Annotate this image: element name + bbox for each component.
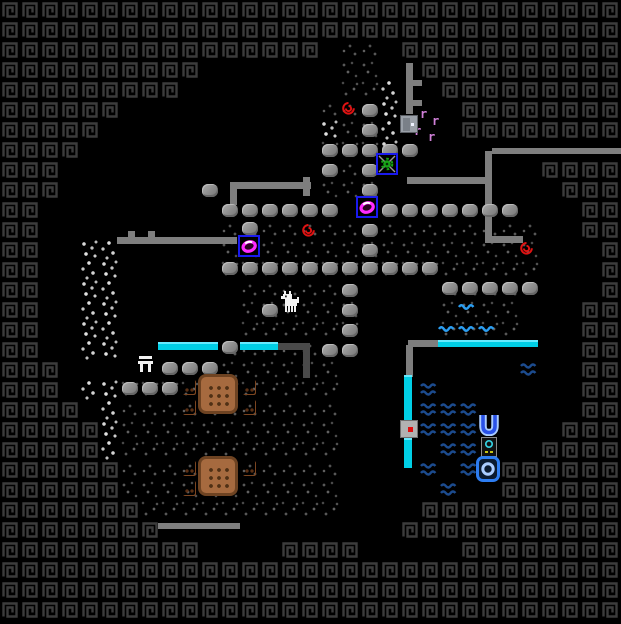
border-wall-tile (400, 580, 420, 600)
rough-floor-tile (300, 240, 320, 260)
border-wall-tile (460, 540, 480, 560)
rough-floor-tile (200, 500, 220, 520)
stone-boulder[interactable] (342, 304, 358, 317)
vermin-glyph[interactable]: r (420, 108, 427, 120)
border-wall-tile (460, 520, 480, 540)
rough-floor-tile (300, 280, 320, 300)
border-wall-tile (300, 20, 320, 40)
stone-boulder[interactable] (182, 362, 198, 375)
border-wall-tile (0, 300, 20, 320)
stone-boulder[interactable] (242, 222, 258, 235)
border-wall-tile (600, 420, 620, 440)
border-wall-tile (400, 0, 420, 20)
stone-boulder[interactable] (282, 204, 298, 217)
stone-boulder[interactable] (342, 262, 358, 275)
rough-floor-tile (320, 480, 340, 500)
border-wall-tile (20, 260, 40, 280)
stone-boulder[interactable] (262, 262, 278, 275)
stone-boulder[interactable] (322, 204, 338, 217)
border-wall-tile (440, 0, 460, 20)
rough-floor-tile (360, 40, 380, 60)
border-wall-tile (600, 120, 620, 140)
rough-floor-tile (260, 360, 280, 380)
border-wall-tile (580, 420, 600, 440)
border-wall-tile (560, 40, 580, 60)
rough-floor-tile (180, 440, 200, 460)
border-wall-tile (600, 280, 620, 300)
ring-building[interactable] (238, 235, 260, 257)
border-wall-tile (280, 0, 300, 20)
border-wall-tile (180, 40, 200, 60)
border-wall-tile (560, 580, 580, 600)
gear-assembly-building[interactable] (376, 153, 398, 175)
border-wall-tile (520, 560, 540, 580)
border-wall-tile (420, 20, 440, 40)
rough-floor-tile (520, 220, 540, 240)
border-wall-tile (60, 600, 80, 620)
white-floor-tile (100, 420, 120, 440)
border-wall-tile (100, 480, 120, 500)
stone-boulder[interactable] (342, 344, 358, 357)
border-wall-tile (300, 0, 320, 20)
border-wall-tile (600, 220, 620, 240)
border-wall-tile (420, 0, 440, 20)
water-tile (420, 422, 438, 441)
border-wall-tile (440, 60, 460, 80)
border-wall-tile (520, 80, 540, 100)
smoothed-wall (407, 177, 487, 184)
border-wall-tile (80, 600, 100, 620)
rough-floor-tile (280, 400, 300, 420)
border-wall-tile (280, 600, 300, 620)
stone-boulder[interactable] (482, 282, 498, 295)
stone-boulder[interactable] (522, 282, 538, 295)
border-wall-tile (20, 500, 40, 520)
stone-boulder[interactable] (282, 262, 298, 275)
border-wall-tile (280, 40, 300, 60)
white-floor-tile (100, 320, 120, 340)
stone-boulder[interactable] (342, 324, 358, 337)
border-wall-tile (40, 520, 60, 540)
red-coil-item[interactable] (340, 100, 357, 121)
border-wall-tile (320, 0, 340, 20)
stone-boulder[interactable] (162, 362, 178, 375)
stone-table-glyph[interactable] (138, 356, 153, 377)
stone-boulder[interactable] (162, 382, 178, 395)
door[interactable] (400, 115, 418, 133)
rough-floor-tile (340, 40, 360, 60)
rough-floor-tile (280, 320, 300, 340)
border-wall-tile (580, 200, 600, 220)
border-wall-tile (200, 580, 220, 600)
border-wall-tile (40, 120, 60, 140)
border-wall-tile (20, 40, 40, 60)
border-wall-tile (240, 40, 260, 60)
rough-floor-tile (480, 300, 500, 320)
border-wall-tile (260, 560, 280, 580)
border-wall-tile (600, 100, 620, 120)
ring-building[interactable] (356, 196, 378, 218)
border-wall-tile (580, 300, 600, 320)
border-wall-tile (580, 480, 600, 500)
border-wall-tile (20, 560, 40, 580)
border-wall-tile (60, 120, 80, 140)
border-wall-tile (300, 600, 320, 620)
border-wall-tile (560, 560, 580, 580)
stone-boulder[interactable] (422, 262, 438, 275)
rough-floor-tile (260, 500, 280, 520)
border-wall-tile (80, 120, 100, 140)
border-wall-tile (0, 320, 20, 340)
border-wall-tile (480, 0, 500, 20)
border-wall-tile (520, 480, 540, 500)
stone-boulder[interactable] (462, 204, 478, 217)
rough-floor-tile (480, 240, 500, 260)
door-marked[interactable] (400, 420, 418, 438)
border-wall-tile (40, 380, 60, 400)
border-wall-tile (380, 560, 400, 580)
border-wall-tile (160, 600, 180, 620)
border-wall-tile (20, 360, 40, 380)
wooden-stool[interactable] (183, 400, 196, 415)
white-floor-tile (100, 260, 120, 280)
stone-boulder[interactable] (402, 262, 418, 275)
border-wall-tile (40, 80, 60, 100)
border-wall-tile (80, 0, 100, 20)
border-wall-tile (600, 560, 620, 580)
stone-boulder[interactable] (322, 144, 338, 157)
border-wall-tile (560, 60, 580, 80)
wooden-stool[interactable] (183, 380, 196, 395)
border-wall-tile (80, 420, 100, 440)
border-wall-tile (160, 20, 180, 40)
border-wall-tile (320, 560, 340, 580)
stone-boulder[interactable] (362, 244, 378, 257)
border-wall-tile (80, 80, 100, 100)
rough-floor-tile (260, 480, 280, 500)
fortress-map[interactable]: rrrr (0, 0, 621, 610)
rough-floor-tile (320, 400, 340, 420)
border-wall-tile (160, 40, 180, 60)
stone-boulder[interactable] (302, 262, 318, 275)
stone-boulder[interactable] (362, 104, 378, 117)
rough-floor-tile (180, 500, 200, 520)
well-glyph[interactable] (478, 413, 500, 440)
border-wall-tile (600, 600, 620, 620)
stone-boulder[interactable] (222, 341, 238, 354)
border-wall-tile (560, 540, 580, 560)
border-wall-tile (360, 20, 380, 40)
rough-floor-tile (160, 400, 180, 420)
border-wall-tile (540, 440, 560, 460)
border-wall-tile (20, 240, 40, 260)
border-wall-tile (0, 560, 20, 580)
stone-boulder[interactable] (362, 224, 378, 237)
border-wall-tile (560, 180, 580, 200)
border-wall-tile (60, 420, 80, 440)
stone-boulder[interactable] (402, 144, 418, 157)
border-wall-tile (0, 580, 20, 600)
border-wall-tile (560, 20, 580, 40)
rough-floor-tile (440, 240, 460, 260)
rough-floor-tile (500, 300, 520, 320)
border-wall-tile (580, 380, 600, 400)
white-cat-creature[interactable] (281, 291, 301, 318)
border-wall-tile (440, 600, 460, 620)
border-wall-tile (560, 100, 580, 120)
border-wall-tile (480, 20, 500, 40)
border-wall-tile (0, 120, 20, 140)
wooden-stool[interactable] (243, 461, 256, 476)
stone-boulder[interactable] (142, 382, 158, 395)
border-wall-tile (60, 480, 80, 500)
border-wall-tile (460, 40, 480, 60)
border-wall-tile (0, 240, 20, 260)
smoothed-wall (413, 100, 422, 106)
border-wall-tile (40, 400, 60, 420)
border-wall-tile (360, 560, 380, 580)
white-floor-tile (80, 320, 100, 340)
border-wall-tile (100, 460, 120, 480)
shallow-water-tile (458, 318, 475, 337)
border-wall-tile (500, 560, 520, 580)
white-floor-tile (80, 380, 100, 400)
border-wall-tile (500, 80, 520, 100)
stone-boulder[interactable] (362, 262, 378, 275)
rough-floor-tile (160, 480, 180, 500)
border-wall-tile (560, 0, 580, 20)
border-wall-tile (20, 280, 40, 300)
rough-floor-tile (280, 220, 300, 240)
rough-floor-tile (120, 400, 140, 420)
border-wall-tile (0, 220, 20, 240)
water-tile (460, 422, 478, 441)
border-wall-tile (20, 160, 40, 180)
border-wall-tile (500, 580, 520, 600)
border-wall-tile (0, 480, 20, 500)
border-wall-tile (40, 540, 60, 560)
stone-boulder[interactable] (482, 204, 498, 217)
rough-floor-tile (500, 240, 520, 260)
rough-floor-tile (200, 420, 220, 440)
white-floor-tile (100, 380, 120, 400)
wooden-stool[interactable] (243, 380, 256, 395)
rough-floor-tile (120, 460, 140, 480)
rough-floor-tile (240, 360, 260, 380)
rough-floor-tile (340, 80, 360, 100)
border-wall-tile (600, 40, 620, 60)
border-wall-tile (120, 600, 140, 620)
stone-boulder[interactable] (502, 282, 518, 295)
border-wall-tile (300, 580, 320, 600)
wooden-table[interactable] (198, 374, 238, 414)
white-floor-tile (320, 120, 340, 140)
border-wall-tile (80, 540, 100, 560)
border-wall-tile (80, 520, 100, 540)
border-wall-tile (100, 580, 120, 600)
border-wall-tile (20, 440, 40, 460)
stone-boulder[interactable] (402, 204, 418, 217)
stone-boulder[interactable] (502, 204, 518, 217)
border-wall-tile (580, 540, 600, 560)
water-tile (460, 402, 478, 421)
border-wall-tile (380, 20, 400, 40)
border-wall-tile (40, 180, 60, 200)
border-wall-tile (520, 20, 540, 40)
border-wall-tile (280, 580, 300, 600)
border-wall-tile (20, 80, 40, 100)
border-wall-tile (540, 0, 560, 20)
border-wall-tile (480, 500, 500, 520)
stone-boulder[interactable] (202, 184, 218, 197)
border-wall-tile (520, 120, 540, 140)
border-wall-tile (600, 160, 620, 180)
stone-boulder[interactable] (422, 204, 438, 217)
rough-floor-tile (460, 260, 480, 280)
blue-o-building[interactable] (476, 456, 500, 482)
stone-boulder[interactable] (322, 164, 338, 177)
border-wall-tile (560, 80, 580, 100)
rough-floor-tile (320, 500, 340, 520)
border-wall-tile (40, 140, 60, 160)
border-wall-tile (60, 580, 80, 600)
stone-boulder[interactable] (382, 262, 398, 275)
border-wall-tile (320, 600, 340, 620)
rough-floor-tile (240, 320, 260, 340)
border-wall-tile (520, 40, 540, 60)
border-wall-tile (340, 580, 360, 600)
stone-boulder[interactable] (262, 204, 278, 217)
border-wall-tile (120, 0, 140, 20)
border-wall-tile (40, 460, 60, 480)
border-wall-tile (0, 420, 20, 440)
border-wall-tile (180, 560, 200, 580)
border-wall-tile (60, 0, 80, 20)
stone-boulder[interactable] (242, 204, 258, 217)
border-wall-tile (460, 0, 480, 20)
border-wall-tile (120, 60, 140, 80)
border-wall-tile (100, 500, 120, 520)
border-wall-tile (580, 400, 600, 420)
stone-boulder[interactable] (302, 204, 318, 217)
border-wall-tile (360, 600, 380, 620)
stone-boulder[interactable] (242, 262, 258, 275)
stone-boulder[interactable] (222, 204, 238, 217)
border-wall-tile (260, 580, 280, 600)
white-floor-tile (80, 300, 100, 320)
water-tile (420, 382, 438, 401)
border-wall-tile (20, 380, 40, 400)
stone-boulder[interactable] (442, 204, 458, 217)
border-wall-tile (60, 440, 80, 460)
stone-boulder[interactable] (462, 282, 478, 295)
border-wall-tile (300, 40, 320, 60)
stone-boulder[interactable] (342, 144, 358, 157)
glass-wall (438, 340, 538, 347)
water-tile (420, 402, 438, 421)
border-wall-tile (440, 40, 460, 60)
wooden-stool[interactable] (183, 481, 196, 496)
border-wall-tile (520, 520, 540, 540)
stone-boulder[interactable] (322, 262, 338, 275)
border-wall-tile (0, 380, 20, 400)
stone-boulder[interactable] (222, 262, 238, 275)
border-wall-tile (20, 520, 40, 540)
border-wall-tile (580, 40, 600, 60)
border-wall-tile (400, 560, 420, 580)
stone-boulder[interactable] (322, 344, 338, 357)
border-wall-tile (120, 20, 140, 40)
rough-floor-tile (160, 500, 180, 520)
border-wall-tile (540, 40, 560, 60)
border-wall-tile (540, 560, 560, 580)
smoothed-wall (117, 237, 237, 244)
rough-floor-tile (300, 460, 320, 480)
border-wall-tile (580, 560, 600, 580)
border-wall-tile (480, 520, 500, 540)
border-wall-tile (40, 560, 60, 580)
border-wall-tile (60, 540, 80, 560)
border-wall-tile (560, 420, 580, 440)
border-wall-tile (580, 460, 600, 480)
red-coil-item[interactable] (300, 222, 317, 243)
border-wall-tile (420, 40, 440, 60)
rough-floor-tile (180, 420, 200, 440)
border-wall-tile (580, 0, 600, 20)
border-wall-tile (600, 300, 620, 320)
border-wall-tile (500, 520, 520, 540)
rough-floor-tile (320, 180, 340, 200)
border-wall-tile (540, 100, 560, 120)
stone-boulder[interactable] (262, 304, 278, 317)
rough-floor-tile (300, 500, 320, 520)
wooden-stool[interactable] (243, 400, 256, 415)
stone-boulder[interactable] (362, 124, 378, 137)
border-wall-tile (200, 0, 220, 20)
red-coil-item[interactable] (518, 240, 535, 261)
stockpiled-item[interactable] (481, 437, 497, 457)
border-wall-tile (220, 600, 240, 620)
vermin-glyph[interactable]: r (428, 131, 435, 143)
border-wall-tile (460, 600, 480, 620)
border-wall-tile (20, 60, 40, 80)
border-wall-tile (580, 520, 600, 540)
rough-floor-tile (280, 460, 300, 480)
wooden-table[interactable] (198, 456, 238, 496)
border-wall-tile (80, 40, 100, 60)
stone-boulder[interactable] (442, 282, 458, 295)
border-wall-tile (500, 20, 520, 40)
border-wall-tile (340, 20, 360, 40)
wooden-stool[interactable] (183, 461, 196, 476)
border-wall-tile (500, 60, 520, 80)
border-wall-tile (140, 20, 160, 40)
border-wall-tile (240, 580, 260, 600)
border-wall-tile (140, 80, 160, 100)
smoothed-wall (485, 151, 492, 243)
border-wall-tile (0, 80, 20, 100)
stone-boulder[interactable] (342, 284, 358, 297)
vermin-glyph[interactable]: r (432, 115, 439, 127)
border-wall-tile (140, 600, 160, 620)
stone-boulder[interactable] (382, 204, 398, 217)
stone-boulder[interactable] (122, 382, 138, 395)
border-wall-tile (60, 60, 80, 80)
border-wall-tile (520, 460, 540, 480)
border-wall-tile (280, 560, 300, 580)
border-wall-tile (120, 500, 140, 520)
border-wall-tile (480, 600, 500, 620)
